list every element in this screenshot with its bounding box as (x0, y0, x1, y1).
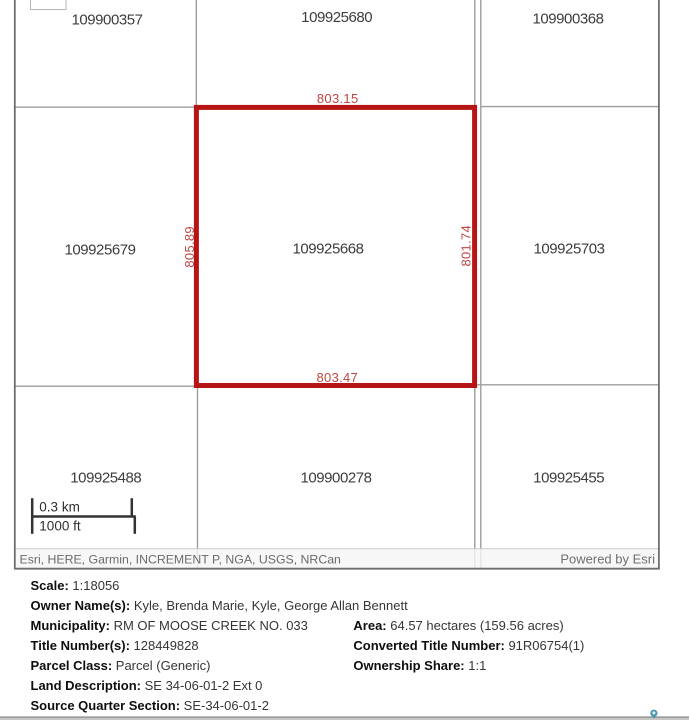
svg-text:109925680: 109925680 (301, 9, 372, 26)
svg-text:803.15: 803.15 (317, 91, 359, 106)
svg-text:109925488: 109925488 (70, 469, 141, 486)
svg-text:0.3 km: 0.3 km (39, 499, 80, 514)
svg-text:801.74: 801.74 (459, 225, 474, 267)
svg-text:109900278: 109900278 (300, 470, 371, 487)
svg-text:109900368: 109900368 (532, 10, 603, 27)
svg-text:109925455: 109925455 (533, 470, 604, 487)
svg-text:1000 ft: 1000 ft (39, 519, 81, 534)
svg-text:Esri, HERE, Garmin, INCREMENT: Esri, HERE, Garmin, INCREMENT P, NGA, US… (20, 553, 342, 567)
svg-text:109925679: 109925679 (64, 241, 135, 258)
svg-text:109925668: 109925668 (292, 240, 363, 257)
svg-text:109900357: 109900357 (71, 11, 142, 28)
svg-text:Powered by Esri: Powered by Esri (560, 551, 655, 566)
svg-text:805.89: 805.89 (182, 226, 197, 268)
svg-text:803.47: 803.47 (317, 370, 359, 385)
svg-text:109925703: 109925703 (533, 241, 604, 258)
